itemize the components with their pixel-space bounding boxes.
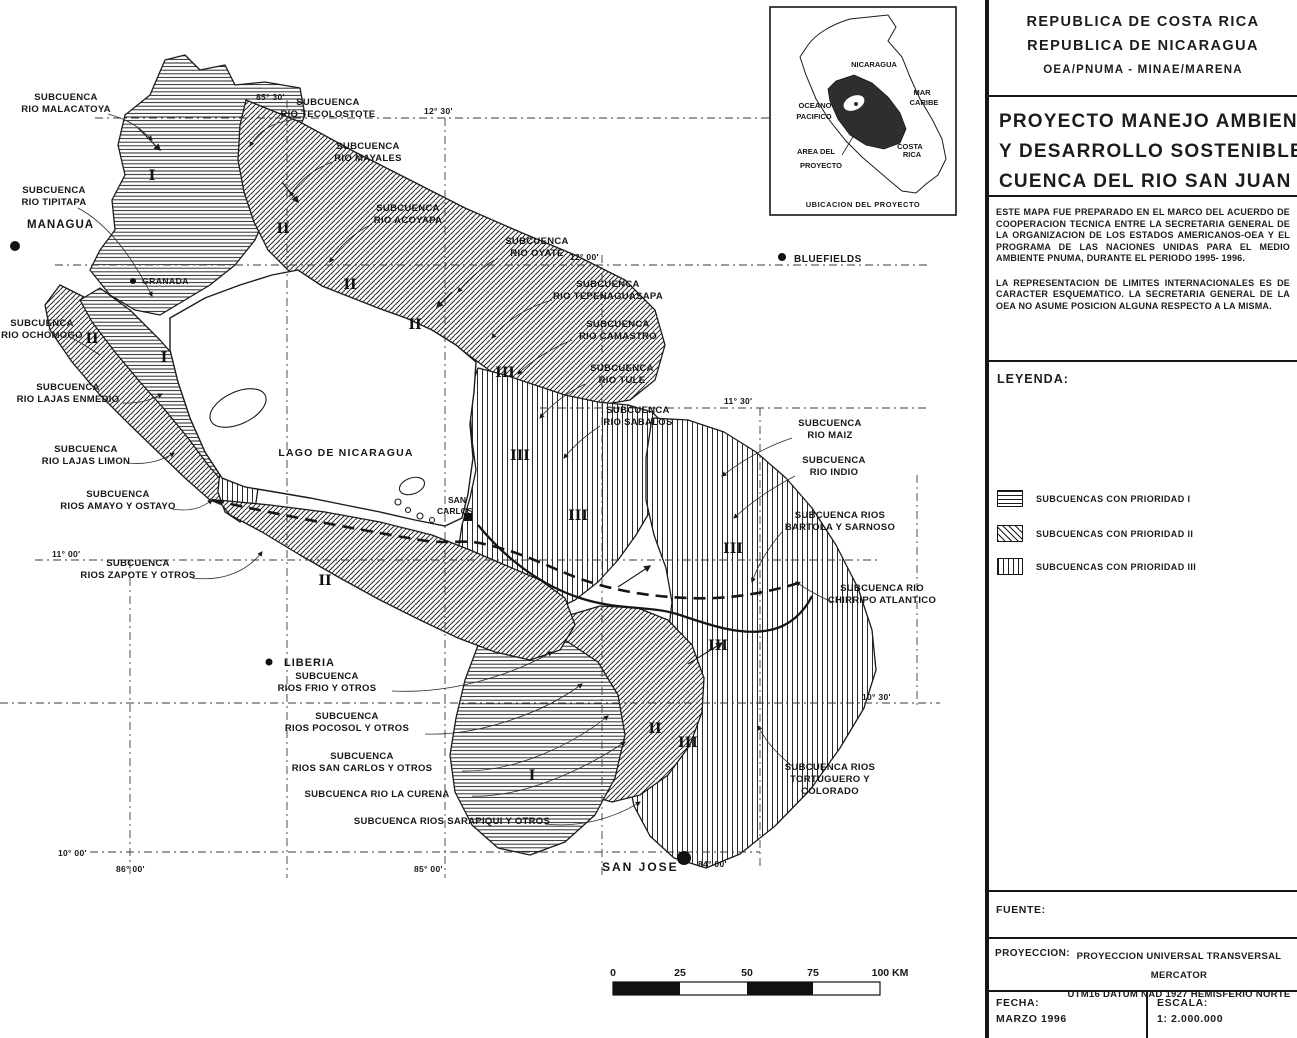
label-subcuenca-sarapiqui: SUBCUENCA RIOS SARAPIQUI Y OTROS bbox=[354, 816, 550, 827]
organizations-line: OEA/PNUMA - MINAE/MARENA bbox=[989, 64, 1297, 76]
scale-tick-50: 50 bbox=[741, 967, 753, 979]
coord-86-00: 86° 00' bbox=[116, 864, 145, 874]
label-subcuenca-san-carlos-otros: RIOS SAN CARLOS Y OTROS bbox=[292, 763, 433, 774]
label-subcuenca-maiz: RIO MAIZ bbox=[807, 430, 852, 441]
coord-11-30: 11° 30' bbox=[724, 396, 752, 406]
coord-85-00: 85° 00' bbox=[414, 864, 443, 874]
label-subcuenca-acoyapa: RIO ACOYAPA bbox=[374, 215, 442, 226]
label-subcuenca-tepenaguasapa: SUBCUENCA bbox=[576, 279, 639, 290]
label-subcuenca-malacatoya: RIO MALACATOYA bbox=[21, 104, 111, 115]
scale-tick-25: 25 bbox=[674, 967, 686, 979]
scale-tick-100km: 100 KM bbox=[872, 967, 909, 979]
label-managua: MANAGUA bbox=[27, 219, 94, 231]
priority-mark-III: III bbox=[510, 448, 530, 464]
country-name: REPUBLICA DE NICARAGUA bbox=[989, 34, 1297, 58]
label-subcuenca-mayales: SUBCUENCA bbox=[336, 141, 399, 152]
priority-1-swatch-icon bbox=[997, 490, 1023, 507]
label-bluefields: BLUEFIELDS bbox=[794, 254, 862, 265]
coord-12-00: 12° 00' bbox=[570, 252, 599, 262]
label-subcuenca-pocosol: SUBCUENCA bbox=[315, 711, 378, 722]
scale-tick-75: 75 bbox=[807, 967, 819, 979]
priority-mark-III: III bbox=[568, 508, 588, 524]
label-subcuenca-malacatoya: SUBCUENCA bbox=[34, 92, 97, 103]
label-subcuenca-indio: RIO INDIO bbox=[810, 467, 859, 478]
label-subcuenca-oyate: SUBCUENCA bbox=[505, 236, 568, 247]
label-san-carlos: CARLOS bbox=[437, 506, 473, 516]
legend-heading: LEYENDA: bbox=[997, 372, 1069, 386]
label-subcuenca-bartola-sarnoso: SUBCUENCA RIOS bbox=[795, 510, 885, 521]
priority-mark-III: III bbox=[678, 735, 698, 751]
legend-item-priority-2: SUBCUENCAS CON PRIORIDAD II bbox=[997, 525, 1193, 542]
coord-85-30: 85° 30' bbox=[256, 92, 285, 102]
priority-mark-III: III bbox=[495, 365, 515, 381]
fuente-box: FUENTE: bbox=[989, 892, 1297, 939]
project-title: CUENCA DEL RIO SAN JUAN bbox=[999, 167, 1289, 197]
label-subcuenca-camastro: RIO CAMASTRO bbox=[579, 331, 657, 342]
label-liberia: LIBERIA bbox=[284, 657, 335, 669]
label-subcuenca-sabalos: SUBCUENCA bbox=[606, 405, 669, 416]
label-subcuenca-frio: RIOS FRIO Y OTROS bbox=[278, 683, 377, 694]
proyeccion-line: PROYECCION UNIVERSAL TRANSVERSAL MERCATO… bbox=[1063, 947, 1295, 985]
priority-mark-II: II bbox=[318, 573, 331, 589]
date-scale-box: FECHA: MARZO 1996 ESCALA: 1: 2.000.000 bbox=[989, 992, 1297, 1038]
label-subcuenca-tepenaguasapa: RIO TEPENAGUASAPA bbox=[553, 291, 663, 302]
legend-label: SUBCUENCAS CON PRIORIDAD II bbox=[1036, 529, 1193, 539]
label-subcuenca-chirripo: CHIRRIPO ATLANTICO bbox=[828, 595, 936, 606]
label-subcuenca-zapote: SUBCUENCA bbox=[106, 558, 169, 569]
escala-value: 1: 2.000.000 bbox=[1157, 1013, 1297, 1025]
label-subcuenca-oyate: RIO OYATE bbox=[510, 248, 563, 259]
priority-mark-II: II bbox=[343, 277, 356, 293]
legend-item-priority-1: SUBCUENCAS CON PRIORIDAD I bbox=[997, 490, 1190, 507]
label-subcuenca-tipitapa: RIO TIPITAPA bbox=[22, 197, 87, 208]
map-sheet: I I I II II II II II II III III III III … bbox=[0, 0, 1297, 1038]
label-subcuenca-ochomogo: SUBCUENCA bbox=[10, 318, 73, 329]
label-subcuenca-san-carlos-otros: SUBCUENCA bbox=[330, 751, 393, 762]
priority-mark-II: II bbox=[85, 331, 98, 347]
label-subcuenca-tule: RIO TULE bbox=[599, 375, 646, 386]
proyeccion-label: PROYECCION: bbox=[995, 948, 1070, 959]
label-subcuenca-zapote: RIOS ZAPOTE Y OTROS bbox=[80, 570, 195, 581]
note-paragraph: ESTE MAPA FUE PREPARADO EN EL MARCO DEL … bbox=[996, 207, 1290, 265]
fuente-label: FUENTE: bbox=[996, 904, 1046, 916]
label-subcuenca-tecolostote: SUBCUENCA bbox=[296, 97, 359, 108]
label-subcuenca-lajas-limon: SUBCUENCA bbox=[54, 444, 117, 455]
label-subcuenca-indio: SUBCUENCA bbox=[802, 455, 865, 466]
label-subcuenca-tecolostote: RIO TECOLOSTOTE bbox=[280, 109, 375, 120]
label-subcuenca-tortuguero: TORTUGUERO Y bbox=[790, 774, 870, 785]
label-subcuenca-amayo-ostayo: SUBCUENCA bbox=[86, 489, 149, 500]
priority-mark-I: I bbox=[149, 168, 156, 184]
priority-mark-I: I bbox=[529, 768, 536, 784]
fecha-value: MARZO 1996 bbox=[996, 1013, 1146, 1025]
inset-island bbox=[854, 102, 858, 106]
coord-84-00: 84° 00' bbox=[698, 859, 727, 869]
basin-map: I I I II II II II II II III III III III … bbox=[0, 0, 985, 1038]
label-subcuenca-maiz: SUBCUENCA bbox=[798, 418, 861, 429]
label-subcuenca-bartola-sarnoso: BARTOLA Y SARNOSO bbox=[785, 522, 895, 533]
project-title-box: PROYECTO MANEJO AMBIENTAL Y DESARROLLO S… bbox=[989, 97, 1297, 197]
label-granada: GRANADA bbox=[142, 276, 189, 286]
inset-label-oceano-pacifico: PACIFICO bbox=[796, 112, 831, 121]
inset-label-costa-rica: RICA bbox=[903, 150, 922, 159]
label-subcuenca-lajas-limon: RIO LAJAS LIMON bbox=[42, 456, 130, 467]
label-subcuenca-tipitapa: SUBCUENCA bbox=[22, 185, 85, 196]
inset-label-area-proyecto: AREA DEL bbox=[797, 147, 835, 156]
label-subcuenca-camastro: SUBCUENCA bbox=[586, 319, 649, 330]
location-inset: NICARAGUA MAR CARIBE OCEANO PACIFICO ARE… bbox=[770, 7, 956, 215]
priority-mark-II: II bbox=[408, 317, 421, 333]
priority-mark-III: III bbox=[723, 541, 743, 557]
legend-label: SUBCUENCAS CON PRIORIDAD I bbox=[1036, 494, 1190, 504]
notes-box: ESTE MAPA FUE PREPARADO EN EL MARCO DEL … bbox=[989, 197, 1297, 362]
managua-dot bbox=[10, 241, 20, 251]
san-jose-dot bbox=[677, 851, 691, 865]
escala-label: ESCALA: bbox=[1157, 997, 1297, 1009]
legend-label: SUBCUENCAS CON PRIORIDAD III bbox=[1036, 562, 1196, 572]
scale-tick-0: 0 bbox=[610, 967, 616, 979]
escala-cell: ESCALA: 1: 2.000.000 bbox=[1146, 992, 1297, 1038]
label-subcuenca-tule: SUBCUENCA bbox=[590, 363, 653, 374]
label-subcuenca-ochomogo: RIO OCHOMOGO bbox=[1, 330, 83, 341]
priority-mark-II: II bbox=[276, 221, 289, 237]
inset-label-mar-caribe: MAR bbox=[913, 88, 931, 97]
label-subcuenca-tortuguero: COLORADO bbox=[801, 786, 859, 797]
label-subcuenca-frio: SUBCUENCA bbox=[295, 671, 358, 682]
granada-dot bbox=[130, 278, 136, 284]
proyeccion-box: PROYECCION: PROYECCION UNIVERSAL TRANSVE… bbox=[989, 939, 1297, 992]
priority-mark-I: I bbox=[161, 350, 168, 366]
bluefields-dot bbox=[778, 253, 786, 261]
note-paragraph: LA REPRESENTACION DE LIMITES INTERNACION… bbox=[996, 278, 1290, 313]
panel-header: REPUBLICA DE COSTA RICA REPUBLICA DE NIC… bbox=[989, 0, 1297, 97]
legend-item-priority-3: SUBCUENCAS CON PRIORIDAD III bbox=[997, 558, 1196, 575]
label-subcuenca-tortuguero: SUBCUENCA RIOS bbox=[785, 762, 875, 773]
label-subcuenca-pocosol: RIOS POCOSOL Y OTROS bbox=[285, 723, 409, 734]
fecha-label: FECHA: bbox=[996, 997, 1146, 1009]
project-title: Y DESARROLLO SOSTENIBLE bbox=[999, 137, 1289, 167]
inset-label-mar-caribe: CARIBE bbox=[910, 98, 939, 107]
inset-label-oceano-pacifico: OCEANO bbox=[799, 101, 832, 110]
coord-10-30: 10° 30' bbox=[862, 692, 891, 702]
liberia-dot bbox=[266, 659, 273, 666]
inset-label-nicaragua: NICARAGUA bbox=[851, 60, 897, 69]
inset-label-area-proyecto: PROYECTO bbox=[800, 161, 842, 170]
priority-mark-II: II bbox=[648, 721, 661, 737]
inset-caption: UBICACION DEL PROYECTO bbox=[806, 200, 920, 209]
country-name: REPUBLICA DE COSTA RICA bbox=[989, 10, 1297, 34]
label-subcuenca-acoyapa: SUBCUENCA bbox=[376, 203, 439, 214]
label-san-jose: SAN JOSE bbox=[602, 860, 679, 874]
label-lake-nicaragua: LAGO DE NICARAGUA bbox=[278, 447, 413, 459]
project-title: PROYECTO MANEJO AMBIENTAL bbox=[999, 107, 1289, 137]
coord-10-00: 10° 00' bbox=[58, 848, 87, 858]
fecha-cell: FECHA: MARZO 1996 bbox=[989, 992, 1146, 1038]
label-subcuenca-mayales: RIO MAYALES bbox=[334, 153, 402, 164]
label-subcuenca-curena: SUBCUENCA RIO LA CURENA bbox=[304, 789, 449, 800]
title-block-panel: REPUBLICA DE COSTA RICA REPUBLICA DE NIC… bbox=[985, 0, 1297, 1038]
label-subcuenca-lajas-enmedio: SUBCUENCA bbox=[36, 382, 99, 393]
scale-bar: 0 25 50 75 100 KM bbox=[610, 967, 909, 995]
label-subcuenca-amayo-ostayo: RIOS AMAYO Y OSTAYO bbox=[60, 501, 176, 512]
label-subcuenca-chirripo: SUBCUENCA RIO bbox=[840, 583, 924, 594]
label-subcuenca-sabalos: RIO SABALOS bbox=[603, 417, 672, 428]
priority-mark-III: III bbox=[708, 638, 728, 654]
legend-box: LEYENDA: SUBCUENCAS CON PRIORIDAD I SUBC… bbox=[989, 362, 1297, 892]
priority-3-swatch-icon bbox=[997, 558, 1023, 575]
label-subcuenca-lajas-enmedio: RIO LAJAS ENMEDIO bbox=[17, 394, 120, 405]
priority-2-swatch-icon bbox=[997, 525, 1023, 542]
coord-12-30: 12° 30' bbox=[424, 106, 453, 116]
coord-11-00: 11° 00' bbox=[52, 549, 80, 559]
label-san-carlos: SAN bbox=[448, 495, 466, 505]
